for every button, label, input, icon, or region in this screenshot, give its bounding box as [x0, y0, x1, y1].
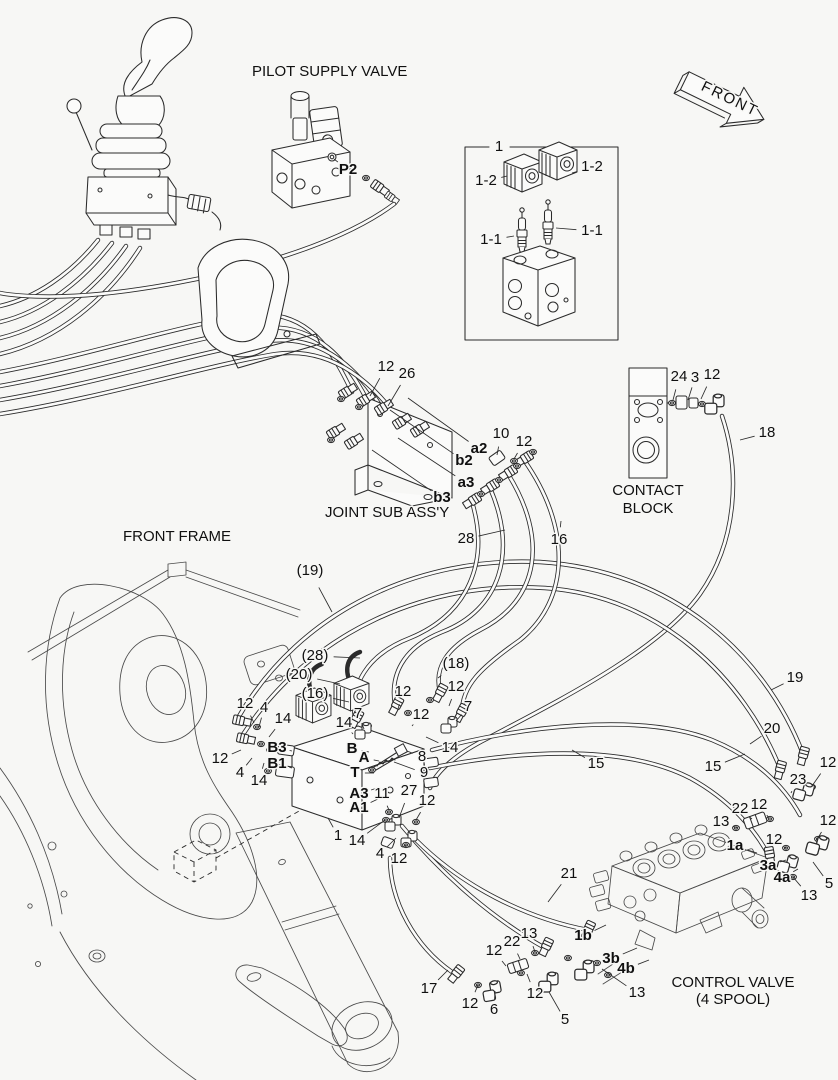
- callout-4: 4: [376, 845, 384, 862]
- callout-14: 14: [336, 714, 353, 731]
- callout-12: 1-2: [581, 158, 603, 175]
- leader-4: [246, 758, 252, 765]
- callout-12: 12: [413, 706, 430, 723]
- callout-22: 22: [732, 800, 749, 817]
- front-frame: [0, 562, 300, 1080]
- leader-12: [701, 387, 707, 399]
- callout-5: 5: [825, 875, 833, 892]
- callout-26: 26: [399, 365, 416, 382]
- leader-18: [740, 436, 755, 440]
- callout-11: 1-1: [581, 222, 603, 239]
- callout-4a: 4a: [774, 869, 791, 886]
- leader-12: [416, 812, 421, 820]
- leader-15: [725, 754, 745, 762]
- leader-24: [673, 389, 676, 400]
- callout-contact: CONTACT: [612, 482, 683, 499]
- callout-4spool: (4 SPOOL): [696, 991, 770, 1008]
- callout-b3: B3: [267, 739, 286, 756]
- callout-jointsubassy: JOINT SUB ASS'Y: [325, 504, 449, 521]
- leader-5: [549, 992, 560, 1011]
- leader-20: [317, 679, 340, 684]
- leader-b3: [290, 751, 292, 752]
- callout-11: 1-1: [480, 231, 502, 248]
- callout-22: 22: [504, 933, 521, 950]
- callout-14: 14: [251, 772, 268, 789]
- callout-controlvalve: CONTROL VALVE: [671, 974, 794, 991]
- leader-14: [269, 729, 275, 737]
- callout-23: 23: [790, 771, 807, 788]
- callout-7: 7: [464, 698, 472, 715]
- callout-3: 3: [691, 369, 699, 386]
- callout-9: 9: [420, 764, 428, 781]
- leader-26: [388, 385, 401, 406]
- leader-28: [334, 657, 360, 658]
- callout-p2: P2: [339, 161, 357, 178]
- callout-10: 10: [493, 425, 510, 442]
- callout-4: 4: [236, 764, 244, 781]
- callout-12: 12: [462, 995, 479, 1012]
- leader-23: [791, 791, 792, 793]
- leader-12: [527, 974, 530, 982]
- callout-12: 12: [704, 366, 721, 383]
- callout-18: (18): [443, 655, 470, 672]
- callout-12: 12: [820, 754, 837, 771]
- callout-12: 12: [237, 695, 254, 712]
- leader-5: [813, 862, 823, 876]
- callout-8: 8: [418, 748, 426, 765]
- callout-13: 13: [629, 984, 646, 1001]
- callout-1a: 1a: [727, 837, 744, 854]
- callout-5: 5: [561, 1011, 569, 1028]
- callout-7: 7: [354, 705, 362, 722]
- callout-12: 12: [448, 678, 465, 695]
- callout-1: 1: [495, 138, 503, 155]
- callout-frontframe: FRONT FRAME: [123, 528, 231, 545]
- leader-12: [449, 699, 452, 706]
- clamp-bracket: [198, 239, 320, 368]
- leader-17: [438, 970, 448, 980]
- callout-t: T: [350, 764, 359, 781]
- callout-12: 12: [516, 433, 533, 450]
- callout-12: 12: [378, 358, 395, 375]
- callout-19: (19): [297, 562, 324, 579]
- callout-28: (28): [302, 647, 329, 664]
- leader-12: [502, 961, 506, 966]
- callout-block: BLOCK: [623, 500, 674, 517]
- leader-22: [518, 954, 521, 959]
- leader-6: [495, 991, 496, 1000]
- leader-12: [412, 725, 413, 727]
- callout-12: 12: [419, 792, 436, 809]
- leader-12: [812, 774, 821, 787]
- leader-14: [426, 737, 438, 743]
- callout-12: 12: [391, 850, 408, 867]
- callout-14: 14: [275, 710, 292, 727]
- callout-14: 14: [349, 832, 366, 849]
- callout-17: 17: [421, 980, 438, 997]
- callout-b1: B1: [267, 755, 286, 772]
- leader-12: [232, 750, 241, 754]
- callout-27: 27: [401, 782, 418, 799]
- callout-28: 28: [458, 530, 475, 547]
- callout-24: 24: [671, 368, 688, 385]
- callout-b2: b2: [455, 452, 473, 469]
- diagram-canvas: PILOT SUPPLY VALVEFRONT11-21-21-11-1P212…: [0, 0, 838, 1080]
- callout-12: 1-2: [475, 172, 497, 189]
- callout-12: 12: [751, 796, 768, 813]
- callout-1b: 1b: [574, 927, 592, 944]
- callout-12: 12: [820, 812, 837, 829]
- callout-a3: a3: [458, 474, 475, 491]
- callout-6: 6: [490, 1001, 498, 1018]
- callout-1: 1: [334, 827, 342, 844]
- leader-3b: [623, 948, 637, 954]
- callout-15: 15: [705, 758, 722, 775]
- callout-13: 13: [801, 887, 818, 904]
- callout-18: 18: [759, 424, 776, 441]
- leader-4b: [638, 960, 649, 964]
- callout-12: 12: [527, 985, 544, 1002]
- leader-13: [793, 877, 801, 886]
- callout-16: 16: [551, 531, 568, 548]
- callout-21: 21: [561, 865, 578, 882]
- callout-12: 12: [766, 831, 783, 848]
- pilot-supply-valve: [272, 92, 400, 209]
- callout-16: (16): [302, 685, 329, 702]
- callout-12: 12: [395, 683, 412, 700]
- leader-11: [507, 236, 515, 237]
- leader-19: [319, 587, 332, 612]
- callout-4b: 4b: [617, 960, 635, 977]
- joystick-assembly: [67, 18, 221, 239]
- callout-13: 13: [713, 813, 730, 830]
- callout-20: 20: [764, 720, 781, 737]
- callout-20: (20): [286, 666, 313, 683]
- callout-a1: A1: [349, 799, 368, 816]
- callout-19: 19: [787, 669, 804, 686]
- callout-a2: a2: [471, 440, 488, 457]
- leader-19: [771, 684, 784, 690]
- callout-12: 12: [486, 942, 503, 959]
- leader-16: [560, 521, 561, 527]
- callout-11: 11: [374, 785, 390, 802]
- boom-link: [174, 806, 399, 1072]
- callout-b: B: [347, 740, 358, 757]
- leader-1b: [595, 925, 607, 931]
- callout-12: 12: [212, 750, 229, 767]
- callout-a: A: [359, 749, 370, 766]
- leader-12: [514, 453, 518, 459]
- callout-14: 14: [442, 739, 459, 756]
- leader-21: [548, 884, 561, 902]
- callout-15: 15: [588, 755, 605, 772]
- callout-4: 4: [260, 699, 268, 716]
- leader-4a: [793, 869, 798, 872]
- leader-20: [750, 736, 761, 744]
- callout-pilotsupplyvalve: PILOT SUPPLY VALVE: [252, 63, 407, 80]
- leader-14: [262, 763, 264, 769]
- callout-13: 13: [521, 925, 538, 942]
- leader-11: [556, 228, 576, 230]
